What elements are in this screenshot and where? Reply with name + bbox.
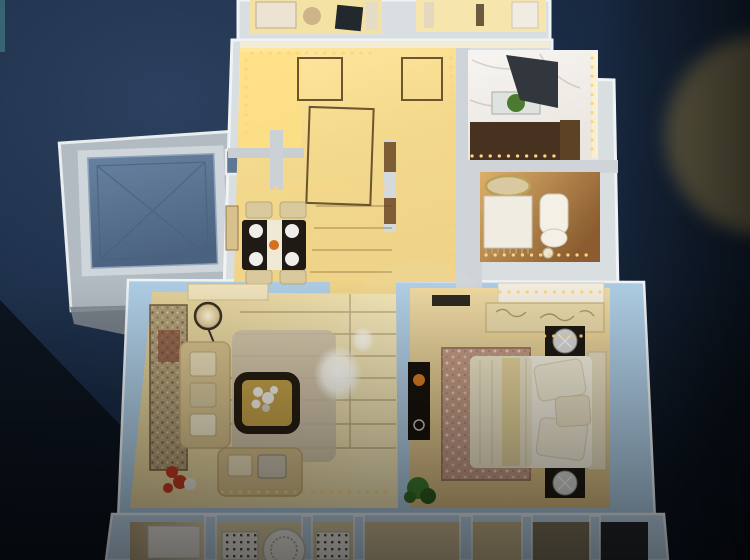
photo-of-apartment-scale-model: [0, 0, 750, 560]
scene-canvas: [0, 0, 750, 560]
vignette-overlay: [0, 0, 750, 560]
